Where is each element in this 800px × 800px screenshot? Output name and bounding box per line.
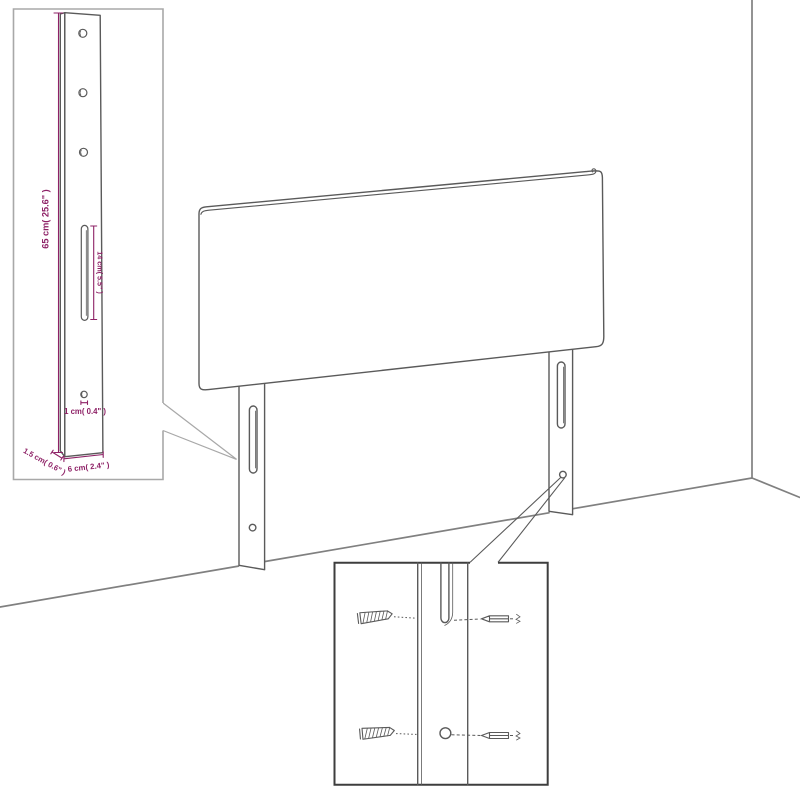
diagram-canvas: 65 cm( 25.6" ) 14 cm( 5.5" ) 1 cm( 0.4" … [0,0,800,800]
leg-left-body [239,380,265,570]
dimension-label-slot-length: 14 cm( 5.5" ) [95,251,104,294]
headboard-panel [199,169,604,390]
inset-leg-drawing [60,13,103,457]
headboard-leg-left [239,380,265,570]
dimension-label-hole-diameter: 1 cm( 0.4" ) [64,407,106,416]
product-diagram: 65 cm( 25.6" ) 14 cm( 5.5" ) 1 cm( 0.4" … [0,0,800,800]
leg-front-face [65,13,103,457]
dimension-label-leg-height: 65 cm( 25.6" ) [41,189,51,249]
headboard-leg-right [549,341,573,515]
inset-screw-detail [335,563,548,785]
callout-lines-leg-detail [163,403,237,459]
wall-floor-line-right [752,478,800,498]
inset-leg-detail: 65 cm( 25.6" ) 14 cm( 5.5" ) 1 cm( 0.4" … [14,9,164,480]
panel-outline [199,171,604,390]
